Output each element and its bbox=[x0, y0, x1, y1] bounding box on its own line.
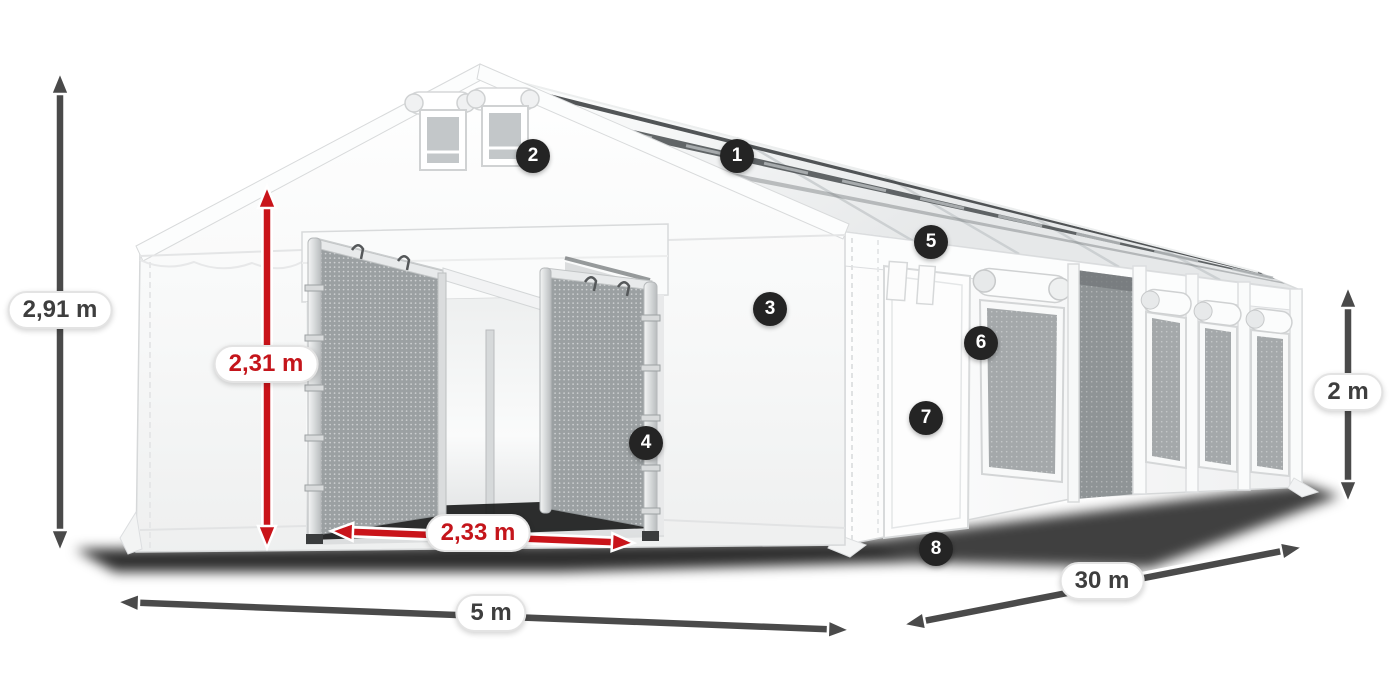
dimension-label-entrance-height: 2,31 m bbox=[214, 345, 319, 383]
dimension-label-side-length: 30 m bbox=[1060, 562, 1145, 600]
callout-badge-1[interactable]: 1 bbox=[720, 139, 754, 173]
side-window-3 bbox=[1193, 299, 1242, 472]
callout-badge-8[interactable]: 8 bbox=[919, 532, 953, 566]
callout-badge-5[interactable]: 5 bbox=[914, 225, 948, 259]
front-entrance bbox=[302, 224, 668, 545]
dimension-label-wall-height: 2 m bbox=[1312, 373, 1383, 411]
door-pole-foot bbox=[306, 534, 323, 544]
door-hanging-tab bbox=[887, 261, 908, 300]
door-pole-foot bbox=[642, 531, 659, 541]
callout-badge-4[interactable]: 4 bbox=[629, 426, 663, 460]
open-side-section bbox=[1068, 264, 1136, 502]
dimension-label-front-width: 5 m bbox=[455, 594, 526, 632]
tent-illustration bbox=[0, 0, 1400, 700]
side-door bbox=[884, 261, 970, 538]
tent-diagram-stage: 2,91 m 2,31 m 2,33 m 5 m 30 m 2 m 1 2 3 … bbox=[0, 0, 1400, 700]
mesh-door-right bbox=[540, 268, 660, 541]
callout-badge-2[interactable]: 2 bbox=[516, 139, 550, 173]
mesh-door-left bbox=[305, 238, 446, 544]
side-pillar bbox=[1068, 264, 1079, 502]
callout-badge-7[interactable]: 7 bbox=[909, 401, 943, 435]
callout-badge-6[interactable]: 6 bbox=[964, 326, 998, 360]
dimension-label-total-height: 2,91 m bbox=[8, 291, 113, 329]
callout-badge-3[interactable]: 3 bbox=[753, 292, 787, 326]
dimension-label-entrance-width: 2,33 m bbox=[426, 514, 531, 552]
side-window-2 bbox=[1140, 288, 1192, 468]
door-hanging-tab bbox=[917, 265, 936, 304]
side-window-4 bbox=[1245, 307, 1293, 476]
